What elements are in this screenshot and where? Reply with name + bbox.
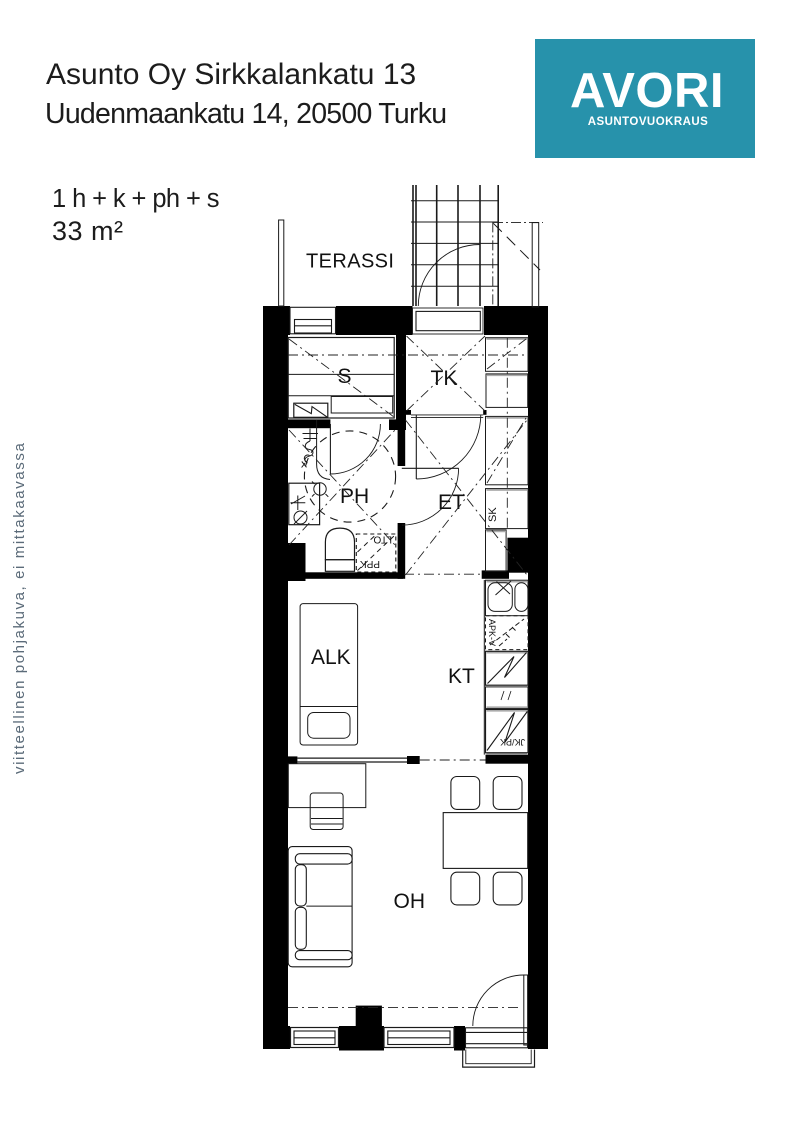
svg-text:KT: KT xyxy=(448,665,475,688)
svg-text:TK: TK xyxy=(431,367,458,390)
svg-text:ET: ET xyxy=(438,491,465,514)
svg-text:PPK: PPK xyxy=(360,558,380,569)
svg-text:APK-V: APK-V xyxy=(487,619,497,646)
svg-text:ALK: ALK xyxy=(311,646,351,669)
svg-text:TERASSI: TERASSI xyxy=(306,251,394,273)
svg-text:OH: OH xyxy=(394,890,426,913)
svg-text:JK/PK: JK/PK xyxy=(500,737,525,747)
svg-text:SK: SK xyxy=(487,507,499,522)
svg-text:PH: PH xyxy=(340,485,369,508)
